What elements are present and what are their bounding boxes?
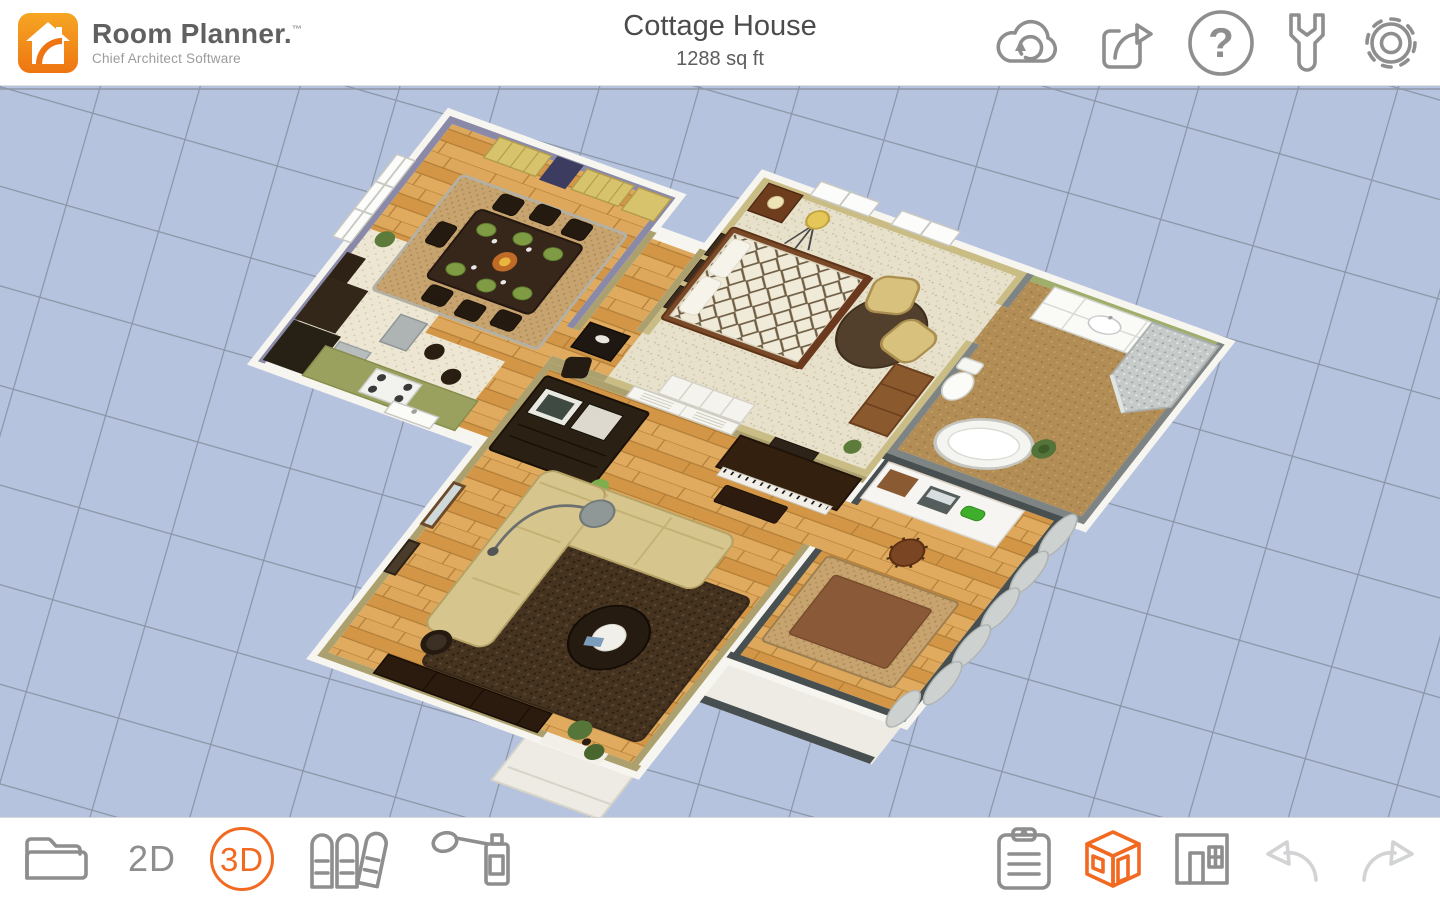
undo-button[interactable]: [1260, 833, 1326, 885]
redo-button[interactable]: [1354, 833, 1420, 885]
help-icon: ?: [1186, 8, 1256, 78]
view-2d-label: 2D: [128, 841, 176, 877]
share-button[interactable]: [1094, 13, 1158, 73]
top-toolbar: Room Planner.™ Chief Architect Software …: [0, 0, 1440, 85]
cloud-sync-icon: [992, 14, 1066, 72]
paint-sprayer-icon: [430, 828, 516, 890]
bottom-toolbar: 2D 3D: [0, 818, 1440, 900]
catalog-books-icon: [308, 827, 396, 891]
house-3d-icon: [1082, 829, 1144, 889]
folder-icon: [20, 830, 94, 888]
clipboard-icon: [994, 826, 1054, 892]
cloud-sync-button[interactable]: [992, 14, 1066, 72]
plan-canvas-3d[interactable]: [0, 85, 1440, 818]
topbar-actions: ?: [992, 8, 1424, 78]
view-3d-active-ring: 3D: [210, 827, 274, 891]
view-2d-button[interactable]: 2D: [128, 841, 176, 877]
brand-text: Room Planner.™ Chief Architect Software: [92, 19, 302, 66]
room-planner-logo-icon: [16, 11, 80, 75]
floorplan-3d-view[interactable]: [0, 86, 1440, 817]
floorplan-elevation-icon: [1172, 830, 1232, 888]
redo-icon: [1354, 833, 1420, 885]
app-logo[interactable]: Room Planner.™ Chief Architect Software: [16, 11, 302, 75]
help-button[interactable]: ?: [1186, 8, 1256, 78]
trademark-symbol: ™: [292, 25, 302, 36]
share-export-icon: [1094, 13, 1158, 73]
logo-tagline: Chief Architect Software: [92, 52, 302, 66]
view-3d-button[interactable]: 3D: [210, 827, 274, 891]
logo-wordmark: Room Planner.™: [92, 19, 302, 48]
project-title-block[interactable]: Cottage House 1288 sq ft: [623, 10, 816, 71]
bottom-right-group: [994, 826, 1420, 892]
undo-icon: [1260, 833, 1326, 885]
tools-button[interactable]: [1284, 10, 1330, 76]
projects-folder-button[interactable]: [20, 830, 94, 888]
room-planner-app: Room Planner.™ Chief Architect Software …: [0, 0, 1440, 900]
gear-icon: [1358, 10, 1424, 76]
svg-text:?: ?: [1208, 19, 1234, 66]
project-title: Cottage House: [623, 10, 816, 43]
view-mode-floorplan-button[interactable]: [1172, 830, 1232, 888]
view-mode-3d-house-button[interactable]: [1082, 829, 1144, 889]
project-area: 1288 sq ft: [623, 48, 816, 71]
settings-button[interactable]: [1358, 10, 1424, 76]
view-3d-label: 3D: [220, 843, 264, 876]
project-details-button[interactable]: [994, 826, 1054, 892]
wrench-icon: [1284, 10, 1330, 76]
paint-button[interactable]: [430, 828, 516, 890]
catalog-button[interactable]: [308, 827, 396, 891]
bottom-left-group: 2D 3D: [20, 827, 516, 891]
